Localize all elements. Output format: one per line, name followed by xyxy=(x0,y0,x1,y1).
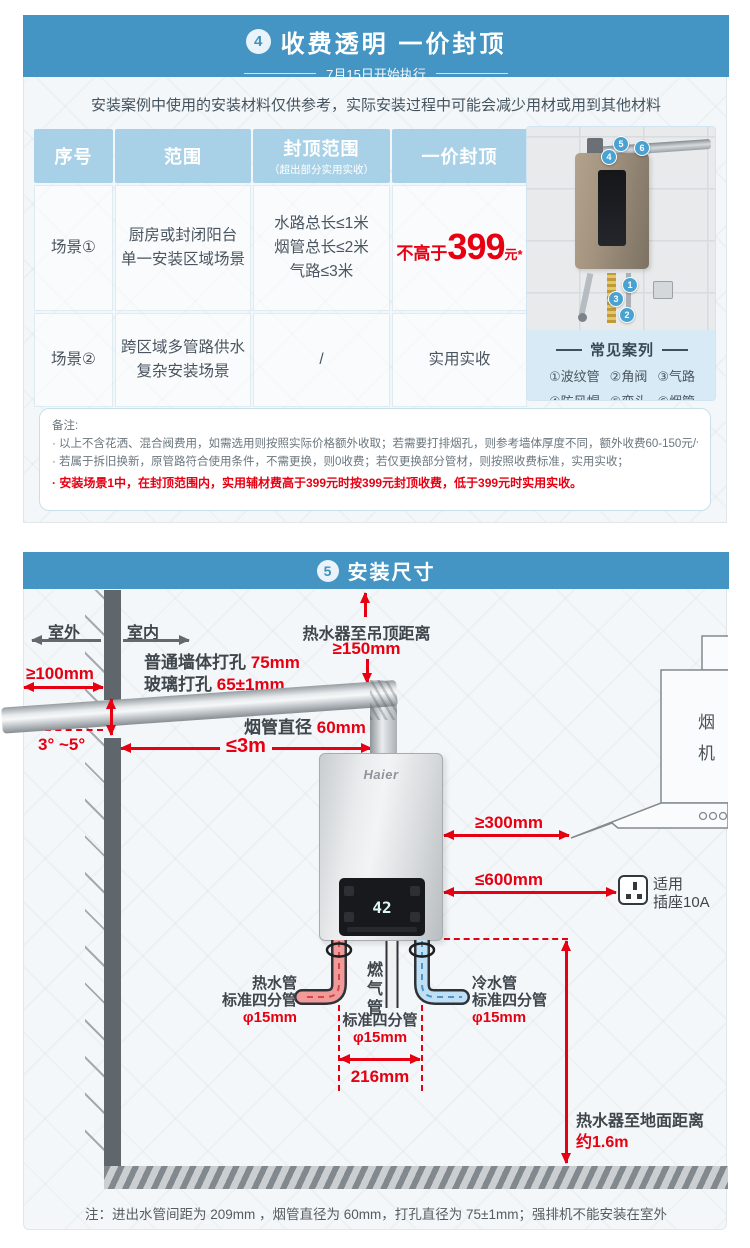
panel-button xyxy=(344,886,354,896)
ceiling-distance-value: ≥150mm xyxy=(284,639,449,659)
hood-chimney xyxy=(702,636,728,670)
marker-4: 4 xyxy=(601,149,617,165)
example-photo-panel: 4 5 6 1 3 2 常见案列 ①波纹管 ②角阀 ③气路 xyxy=(526,126,716,401)
left-clearance-arrow xyxy=(24,686,103,689)
heater-photo: 4 5 6 1 3 2 xyxy=(527,127,716,330)
pricing-table: 序号 范围 封顶范围 （超出部分实用实收） 一价封顶 场景① 厨房或封闭阳台 单… xyxy=(34,129,521,407)
flue-diameter-arrow xyxy=(110,699,113,735)
legend-item: ②角阀 xyxy=(610,366,648,385)
example-caption: 常见案列 xyxy=(590,339,654,360)
col-header-scope: 范围 xyxy=(115,129,251,183)
water-heater: Haier 42 xyxy=(319,753,443,941)
panel-button xyxy=(344,912,354,922)
floor-strip xyxy=(104,1166,728,1189)
col-header-no: 序号 xyxy=(34,129,113,183)
wall-upper xyxy=(104,590,121,700)
hot-pipe-labels: 热水管 标准四分管 φ15mm xyxy=(209,975,297,1026)
cold-pipe-labels: 冷水管 标准四分管 φ15mm xyxy=(472,975,572,1026)
pricing-banner: 4 收费透明 一价封顶 7月15日开始执行 xyxy=(23,15,729,77)
legend-row-2: ④防风帽 ⑤弯头 ⑥烟管 xyxy=(527,391,716,401)
legend-item: ⑥烟管 xyxy=(657,391,695,401)
gas-pipe-size-labels: 标准四分管 φ15mm xyxy=(330,1012,430,1046)
photo-angle-valve xyxy=(578,313,587,322)
marker-1: 1 xyxy=(622,277,638,293)
dimensions-title: 安装尺寸 xyxy=(348,556,436,585)
legend-item: ①波纹管 xyxy=(549,366,600,385)
flue-length-value: ≤3m xyxy=(220,735,272,758)
hood-canopy xyxy=(571,803,728,838)
example-caption-row: 常见案列 xyxy=(527,339,716,360)
ceiling-arrow-down xyxy=(366,659,369,683)
hood-label: 烟机 xyxy=(695,713,717,783)
pricing-banner-row: 4 收费透明 一价封顶 xyxy=(23,15,729,59)
photo-heater-body xyxy=(575,153,649,269)
dimensions-banner: 5 安装尺寸 xyxy=(23,552,729,589)
dimensions-section: 5 安装尺寸 室外 室内 普通墙体打孔 75mm 玻璃打孔 65±1mm ≥10… xyxy=(23,552,727,1230)
table-row1-cap: 水路总长≤1米 烟管总长≤2米 气路≤3米 xyxy=(253,185,390,311)
outdoor-arrow xyxy=(32,639,101,642)
legend-item: ③气路 xyxy=(657,366,695,385)
notes-box: 备注: · 以上不含花洒、混合阀费用，如需选用则按照实际价格额外收取；若需要打排… xyxy=(39,408,711,511)
table-row2-no: 场景② xyxy=(34,313,113,407)
marker-2: 2 xyxy=(619,307,635,323)
panel-button xyxy=(410,886,420,896)
legend-row-1: ①波纹管 ②角阀 ③气路 xyxy=(527,366,716,385)
indoor-arrow xyxy=(123,639,189,642)
table-row2-scope: 跨区域多管路供水 复杂安装场景 xyxy=(115,313,251,407)
pricing-subtitle-row: 7月15日开始执行 xyxy=(23,64,729,83)
legend-item: ④防风帽 xyxy=(549,391,600,401)
floor-distance-value: 约1.6m xyxy=(576,1128,628,1152)
col-header-price: 一价封顶 xyxy=(392,129,527,183)
table-row1-scope: 厨房或封闭阳台 单一安装区域场景 xyxy=(115,185,251,311)
socket-icon xyxy=(618,875,648,905)
photo-corrugated-hose xyxy=(579,273,594,315)
wall-lower xyxy=(104,738,121,1166)
panel-label-strip xyxy=(347,927,417,932)
socket-label-2: 插座10A xyxy=(653,891,710,912)
temperature-value: 42 xyxy=(372,898,391,917)
marker-5: 5 xyxy=(613,136,629,152)
table-row1-price: 不高于399元* xyxy=(392,185,527,311)
example-caption-area: 常见案列 ①波纹管 ②角阀 ③气路 ④防风帽 ⑤弯头 ⑥烟管 xyxy=(527,330,716,401)
marker-3: 3 xyxy=(608,291,624,307)
pricing-section: 4 收费透明 一价封顶 7月15日开始执行 安装案例中使用的安装材料仅供参考，实… xyxy=(23,15,727,523)
angle-value: 3° ~5° xyxy=(38,735,85,755)
hood-clearance-value: ≥300mm xyxy=(454,813,564,833)
table-row2-cap: / xyxy=(253,313,390,407)
flue-elbow-corrugation xyxy=(370,680,397,720)
caption-dash-right xyxy=(662,349,688,351)
hood-clearance-arrow xyxy=(444,834,569,837)
table-row1-no: 场景① xyxy=(34,185,113,311)
control-panel: 42 xyxy=(339,878,425,936)
panel-button xyxy=(410,912,420,922)
dimensions-note: 注：进出水管间距为 209mm ，烟管直径为 60mm，打孔直径为 75±1mm… xyxy=(24,1203,728,1223)
left-clearance-value: ≥100mm xyxy=(26,664,94,684)
flue-diameter-dim: 烟管直径 60mm xyxy=(244,713,366,738)
section-number-badge: 4 xyxy=(246,29,271,54)
marker-6: 6 xyxy=(634,140,650,156)
subtitle-line-left xyxy=(244,73,316,74)
caption-dash-left xyxy=(556,349,582,351)
notes-line-3: · 安装场景1中，在封顶范围内，实用辅材费高于399元时按399元封顶收费，低于… xyxy=(52,474,698,491)
subtitle-line-right xyxy=(436,73,508,74)
section-number-badge: 5 xyxy=(317,560,339,582)
pricing-subtitle: 7月15日开始执行 xyxy=(326,64,426,83)
legend-item: ⑤弯头 xyxy=(610,391,648,401)
table-row2-price: 实用实收 xyxy=(392,313,527,407)
pricing-intro: 安装案例中使用的安装材料仅供参考，实际安装过程中可能会减少用材或用到其他材料 xyxy=(24,94,728,115)
socket-clearance-value: ≤600mm xyxy=(454,870,564,890)
pricing-title: 收费透明 一价封顶 xyxy=(281,24,507,59)
col-header-cap: 封顶范围 （超出部分实用实收） xyxy=(253,129,390,183)
price-cap-value: 不高于399元* xyxy=(396,229,522,267)
temperature-display: 42 xyxy=(361,887,403,927)
notes-line-1: · 以上不含花洒、混合阀费用，如需选用则按照实际价格额外收取；若需要打排烟孔，则… xyxy=(52,436,698,454)
socket-clearance-arrow xyxy=(444,891,616,894)
photo-heater-panel xyxy=(598,170,626,246)
page: 4 收费透明 一价封顶 7月15日开始执行 安装案例中使用的安装材料仅供参考，实… xyxy=(0,0,750,1248)
notes-title: 备注: xyxy=(52,418,698,436)
notes-line-2: · 若属于拆旧换新，原管路符合使用条件，不需更换，则0收费；若仅更换部分管材，则… xyxy=(52,454,698,472)
ceiling-arrow-up xyxy=(364,593,367,617)
photo-socket xyxy=(653,281,673,299)
haier-logo: Haier xyxy=(320,767,442,782)
